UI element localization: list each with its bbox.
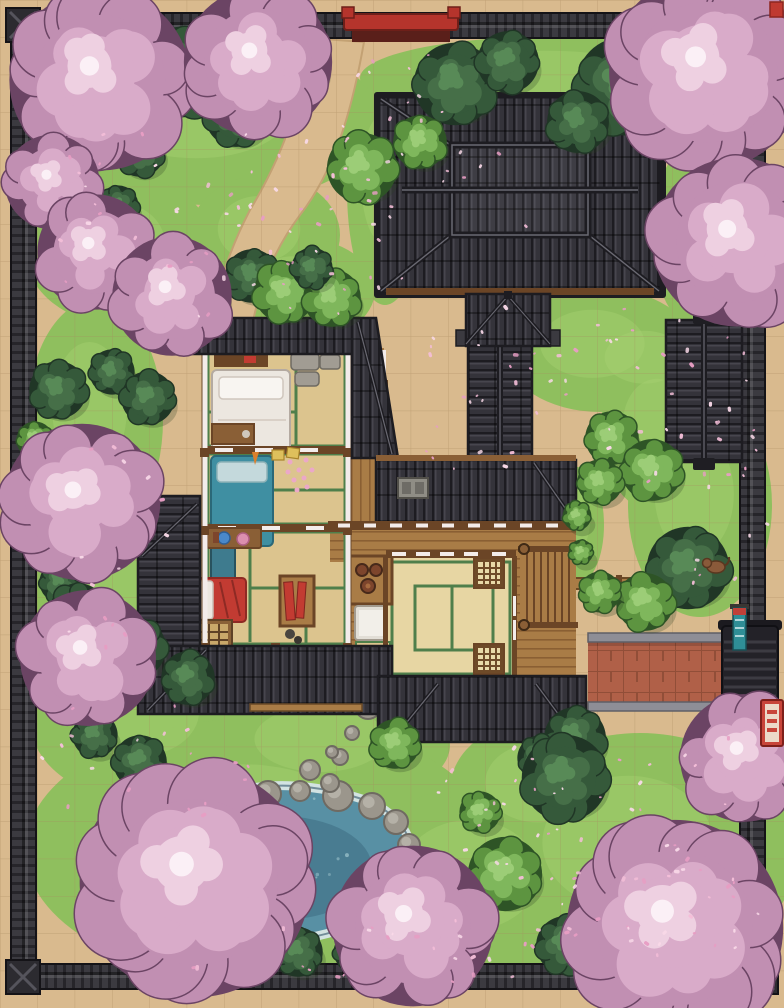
petal — [189, 261, 193, 263]
petal — [673, 844, 676, 846]
petal — [237, 224, 241, 227]
rock — [359, 793, 385, 819]
hanging-banner — [730, 604, 749, 650]
rock — [326, 746, 338, 758]
sparkle — [328, 873, 331, 876]
petal — [204, 802, 206, 806]
petal — [513, 353, 519, 357]
petal — [707, 485, 710, 490]
petal — [694, 568, 696, 571]
sparkle — [315, 876, 317, 878]
sparkle — [316, 873, 320, 877]
sparkle — [345, 853, 349, 857]
lattice-door — [474, 558, 504, 588]
map-canvas[interactable] — [0, 0, 784, 1008]
lattice-door — [474, 644, 504, 674]
wash-basin — [355, 606, 387, 640]
petal — [726, 473, 731, 476]
petal — [637, 430, 643, 434]
petal — [709, 402, 712, 407]
petal — [84, 186, 87, 188]
tiled-fence-east — [666, 312, 742, 470]
petal — [599, 796, 602, 798]
wall-corner-post — [6, 960, 40, 994]
petal — [727, 736, 730, 741]
gate-sign — [761, 700, 783, 746]
walkway-curb-north — [588, 633, 740, 642]
petal — [678, 319, 681, 323]
hall-top-beam — [376, 455, 576, 461]
petal — [343, 167, 347, 170]
petal — [371, 223, 376, 226]
rock — [345, 726, 359, 740]
roof-eave-beam — [250, 704, 362, 711]
shelf-red-box — [244, 356, 256, 363]
sparkle — [313, 797, 316, 800]
temple-porch — [456, 291, 560, 346]
petal — [86, 221, 92, 225]
low-table — [207, 528, 261, 548]
petal — [329, 272, 334, 276]
petal — [748, 534, 751, 538]
rock — [384, 810, 408, 834]
hall-wall-east — [512, 556, 517, 682]
petal — [453, 467, 455, 470]
petal — [462, 176, 466, 179]
corner-flag — [770, 2, 783, 17]
rock — [321, 774, 339, 792]
petal — [269, 250, 273, 256]
petal — [553, 792, 556, 794]
petal — [576, 871, 581, 874]
petal — [733, 929, 736, 933]
rock — [300, 760, 320, 780]
dark-jar — [285, 629, 295, 639]
battle-map — [0, 0, 784, 1008]
petal — [222, 275, 226, 281]
roof-vent — [398, 478, 428, 498]
petal — [420, 118, 423, 123]
petal — [282, 926, 285, 931]
wall-shelf — [214, 354, 268, 367]
petal — [493, 801, 496, 805]
petal — [596, 324, 600, 327]
petal — [195, 965, 199, 971]
low-chest — [212, 424, 254, 444]
blue-chest — [211, 548, 235, 578]
rock — [290, 781, 310, 801]
petal — [654, 471, 657, 476]
dark-jar — [294, 636, 302, 644]
petal — [414, 935, 420, 939]
petal — [733, 881, 735, 884]
sparkle — [337, 857, 340, 860]
petal — [514, 380, 518, 386]
kimono-rack — [280, 576, 314, 626]
